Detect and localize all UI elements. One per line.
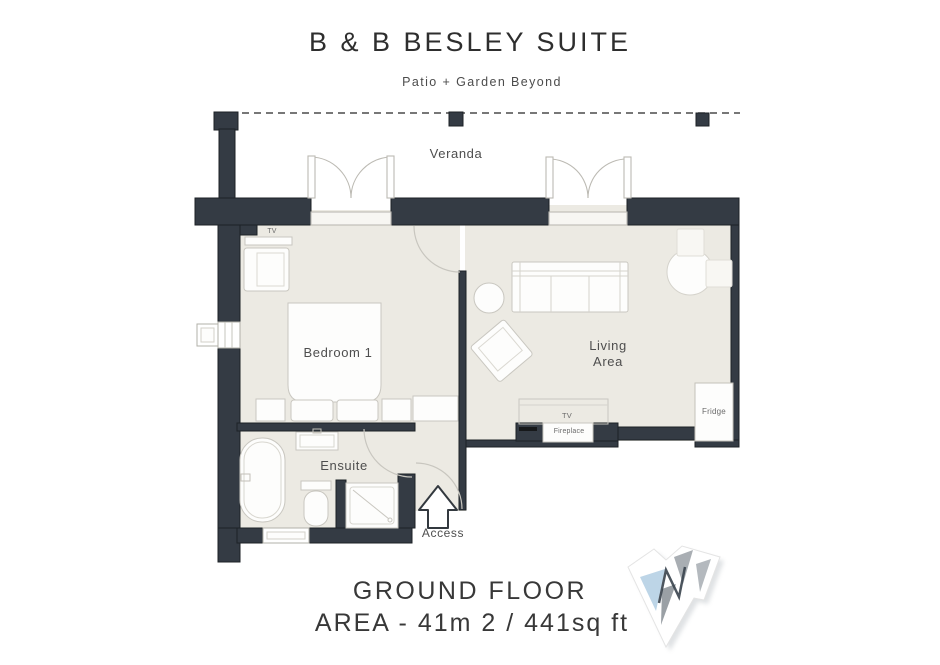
top-wall-left bbox=[195, 198, 311, 225]
ensuite-bottom-wall-a bbox=[237, 528, 263, 543]
bedroom-window-outer-pane bbox=[201, 328, 214, 342]
floorplan-canvas bbox=[0, 0, 940, 665]
side-table bbox=[474, 283, 504, 313]
fireplace-detail bbox=[519, 427, 537, 431]
top-wall-right bbox=[627, 198, 739, 225]
door1-threshold bbox=[311, 212, 391, 225]
living-tv-label: TV bbox=[562, 411, 572, 420]
floor-title: GROUND FLOOR bbox=[353, 577, 587, 606]
door2-right-swing-arc bbox=[588, 159, 627, 198]
living-area-label: Living Area bbox=[589, 338, 627, 371]
page-title: B & B BESLEY SUITE bbox=[309, 27, 631, 58]
fireplace-label: Fireplace bbox=[554, 428, 585, 435]
veranda-label: Veranda bbox=[430, 146, 483, 161]
living-label-line2: Area bbox=[589, 354, 627, 370]
ensuite-bottom-wall-b bbox=[309, 528, 412, 543]
sofa bbox=[512, 262, 628, 312]
shower-wall-right bbox=[398, 474, 415, 528]
ensuite-window-pane bbox=[267, 532, 305, 539]
door1-left-swing-arc bbox=[311, 157, 351, 198]
bedroom-armchair bbox=[244, 248, 289, 291]
left-wall-lower bbox=[218, 348, 240, 528]
door2-threshold bbox=[549, 212, 627, 225]
fireplace-jamb-right bbox=[592, 423, 618, 441]
toilet-bowl bbox=[304, 491, 328, 526]
floorplan-page: B & B BESLEY SUITE Patio + Garden Beyond… bbox=[0, 0, 940, 665]
dining-chair-right bbox=[706, 260, 732, 287]
bedroom-label: Bedroom 1 bbox=[304, 345, 373, 360]
interior-wall-bedroom-living bbox=[459, 271, 466, 510]
area-title: AREA - 41m 2 / 441sq ft bbox=[315, 609, 629, 638]
north-compass-logo bbox=[628, 546, 724, 651]
bedroom-tv-unit bbox=[245, 237, 292, 245]
dining-chair-top bbox=[677, 229, 704, 256]
living-label-line1: Living bbox=[589, 338, 627, 354]
fireplace-jamb-left bbox=[516, 423, 544, 441]
veranda-post-cap bbox=[214, 112, 238, 130]
top-wall-mid bbox=[391, 198, 549, 225]
bed-pillow-left bbox=[291, 400, 333, 421]
door1-left-leaf bbox=[308, 156, 315, 198]
veranda-post-mid bbox=[449, 112, 463, 126]
bedroom-tv-label: TV bbox=[267, 228, 276, 235]
door1-right-swing-arc bbox=[351, 157, 391, 198]
toilet-tank bbox=[301, 481, 331, 490]
door2-right-leaf bbox=[624, 157, 631, 198]
bed-pillow-right bbox=[337, 400, 378, 421]
access-label: Access bbox=[422, 526, 464, 540]
veranda-post-stem bbox=[219, 129, 235, 200]
ensuite-label: Ensuite bbox=[320, 458, 368, 473]
door1-right-leaf bbox=[387, 156, 394, 198]
left-wall-upper bbox=[218, 225, 240, 322]
nightstand-right bbox=[382, 399, 411, 421]
bedroom-corner-bench bbox=[413, 396, 458, 421]
page-subtitle: Patio + Garden Beyond bbox=[402, 75, 562, 89]
door2-left-leaf bbox=[546, 157, 553, 198]
wall-bedroom-ensuite bbox=[237, 423, 415, 431]
door2-left-swing-arc bbox=[549, 159, 588, 198]
shower-wall-left bbox=[336, 480, 346, 528]
bottom-wall-step bbox=[617, 427, 696, 440]
veranda-post-right bbox=[696, 113, 709, 126]
bedroom-window bbox=[218, 322, 240, 348]
nightstand-left bbox=[256, 399, 285, 421]
fridge-label: Fridge bbox=[702, 407, 726, 416]
